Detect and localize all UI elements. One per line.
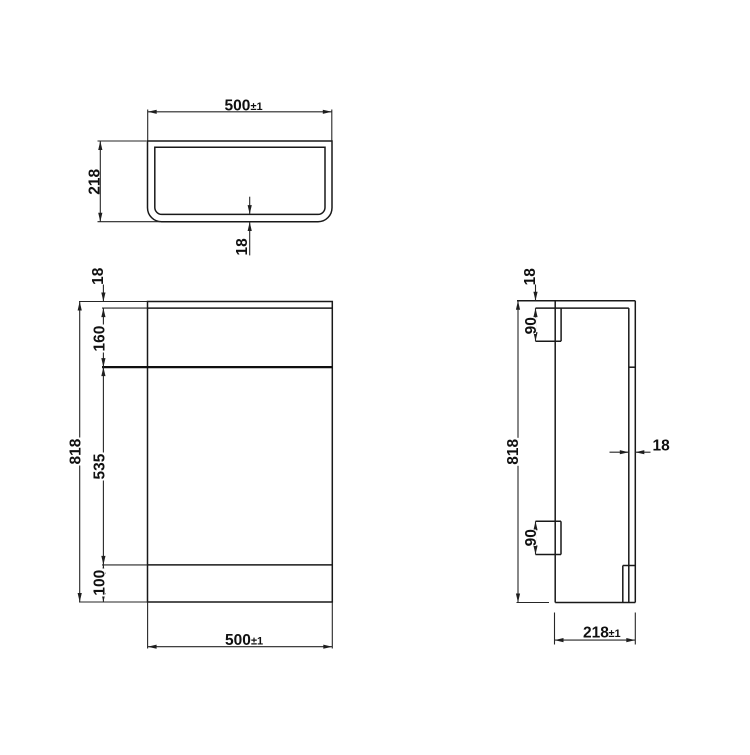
svg-text:±1: ±1 [251,101,263,113]
svg-text:500: 500 [225,632,251,649]
svg-text:18: 18 [90,267,107,285]
svg-text:535: 535 [92,453,109,479]
svg-text:218: 218 [583,625,609,642]
svg-text:818: 818 [505,438,522,464]
svg-text:818: 818 [67,438,84,464]
svg-text:90: 90 [523,529,540,546]
svg-text:18: 18 [653,438,671,455]
svg-text:18: 18 [234,238,251,256]
svg-text:±1: ±1 [251,636,263,648]
svg-text:500: 500 [225,97,251,114]
svg-text:160: 160 [92,326,109,352]
svg-text:18: 18 [522,268,539,286]
svg-text:90: 90 [523,317,540,334]
svg-text:218: 218 [86,168,103,194]
svg-text:100: 100 [92,570,109,596]
svg-text:±1: ±1 [609,628,621,640]
